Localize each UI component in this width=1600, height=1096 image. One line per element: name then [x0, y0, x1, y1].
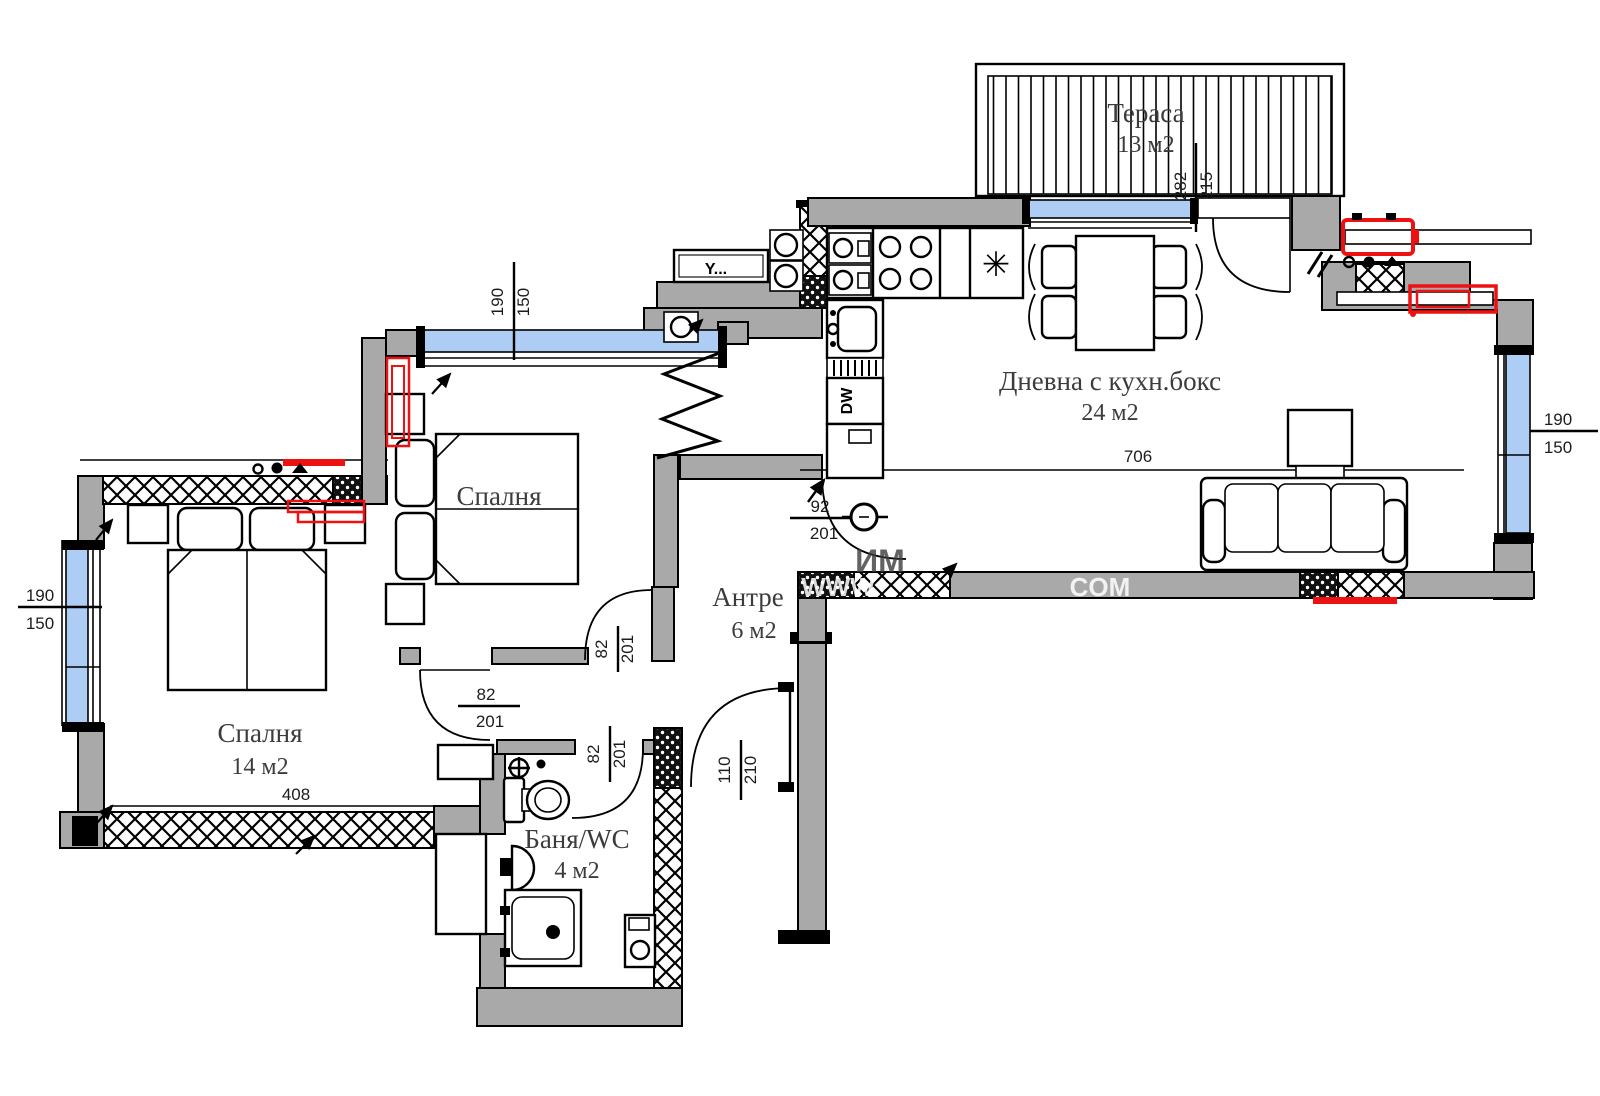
dim-terrace-w: 282 [1171, 172, 1190, 200]
room-label-bedroom1: Спалня [456, 481, 541, 511]
wall-insulated [104, 812, 434, 848]
wall [680, 455, 822, 479]
wall-corner [72, 816, 98, 846]
room-label-bath: Баня/WC [524, 824, 629, 854]
wall-shaft [1300, 572, 1338, 598]
nightstand [386, 584, 424, 624]
watermark-fragment: WWW [801, 572, 875, 602]
wall [497, 740, 575, 754]
chair [1152, 296, 1186, 338]
dim-bedroom2-width: 408 [282, 785, 310, 804]
sofa-seat [1331, 484, 1384, 552]
dim-window-w: 190 [26, 586, 54, 605]
room-label-living: Дневна с кухн.бокс [999, 366, 1221, 396]
window-cap [1022, 198, 1030, 224]
chair-back [1196, 244, 1202, 290]
break-line [657, 352, 722, 458]
nightstand [325, 505, 365, 543]
faucet-dot [830, 341, 836, 347]
dim-door-w: 82 [584, 745, 603, 764]
wall [1292, 196, 1340, 250]
fridge-icon: ✳ [982, 246, 1011, 284]
dim-door-h: 201 [610, 740, 629, 768]
chair [1042, 246, 1076, 288]
dim-window-h: 150 [26, 614, 54, 633]
wall-shaft [654, 728, 682, 788]
sofa-seat [1278, 484, 1331, 552]
toilet-bowl-inner [535, 788, 561, 812]
pillow [396, 440, 434, 506]
dim-window-h: 150 [1544, 438, 1572, 457]
room-area-living: 24 м2 [1081, 400, 1138, 426]
dim-door-h: 201 [618, 635, 637, 663]
faucet-dot [830, 310, 836, 316]
sofa-seat [1225, 484, 1278, 552]
wall [492, 648, 588, 664]
wall [798, 642, 826, 932]
wall-insulated [1338, 572, 1404, 598]
dim-entry-door-h: 201 [810, 524, 838, 543]
mark-dot [1364, 257, 1375, 268]
dim-window-h: 150 [514, 288, 533, 316]
balcony-door-frame [1198, 198, 1290, 218]
wall [480, 934, 505, 992]
ac-pipe [1411, 230, 1419, 243]
washbasin-tap [500, 858, 512, 876]
floor-plan-drawing: Тераса 13 м2 282 215 [0, 0, 1600, 1096]
chair-back [1196, 294, 1202, 340]
closet [436, 834, 486, 934]
window [66, 548, 88, 724]
sofa-armrest [1203, 500, 1225, 562]
toilet-tank [504, 778, 524, 822]
control [858, 241, 869, 256]
sofa-armrest [1383, 500, 1405, 562]
wall-face [1345, 230, 1531, 244]
room-area-hall: 6 м2 [731, 618, 776, 644]
wall-cap [778, 930, 830, 944]
door-hinge [778, 782, 794, 792]
window-cap [1494, 345, 1534, 355]
watermark-fragment: COM [1070, 572, 1131, 602]
mark-tick [1308, 252, 1322, 274]
electric-panel-label: Y... [705, 261, 727, 278]
control [849, 430, 871, 443]
door-arc-balcony [1213, 218, 1290, 292]
room-label-bedroom2: Спалня [217, 718, 302, 748]
shower-tray [512, 897, 574, 959]
shower-valve [500, 948, 510, 957]
window-cap [416, 326, 425, 368]
dim-door-h: 201 [476, 712, 504, 731]
dim-door-w: 82 [592, 640, 611, 659]
boiler-panel [629, 918, 649, 930]
wall [362, 338, 386, 504]
wall [808, 198, 1030, 226]
dish-rack-slats [834, 360, 876, 376]
shower-valve [500, 906, 510, 915]
dining-table [1076, 236, 1154, 350]
room-area-terrace: 13 м2 [1117, 132, 1174, 158]
radiator-mark [283, 459, 345, 466]
wall-insulated [654, 788, 682, 990]
floor-plan-page: Тераса 13 м2 282 215 [0, 0, 1600, 1096]
dim-living-width: 706 [1124, 447, 1152, 466]
dim-terrace-h: 215 [1197, 172, 1216, 200]
wall [78, 724, 104, 816]
dim-door-w: 82 [477, 685, 496, 704]
room-label-terrace: Тераса [1107, 98, 1184, 128]
window-cap [718, 326, 727, 368]
wall [78, 476, 104, 548]
wall-shaft [800, 276, 828, 308]
pillow [250, 508, 314, 550]
dim-wide-door-h: 210 [741, 756, 760, 784]
pillow [396, 513, 434, 579]
chair [1152, 246, 1186, 288]
wardrobe [438, 745, 493, 779]
window-cap [62, 722, 104, 732]
wall [1404, 572, 1534, 598]
door-arc-bath [572, 748, 643, 818]
chair-back [1029, 244, 1035, 290]
wall [798, 598, 826, 642]
nightstand [128, 505, 168, 543]
dim-window-w: 190 [1544, 410, 1572, 429]
sink-basin [838, 307, 876, 351]
dim-wide-door-w: 110 [715, 756, 734, 783]
room-area-bedroom2: 14 м2 [231, 754, 288, 780]
door-leaf-bedroom1 [652, 587, 674, 661]
window-cap [1494, 533, 1534, 543]
window-cap [62, 540, 104, 550]
side-table [1288, 410, 1352, 466]
radiator-mark [1313, 597, 1397, 604]
pillow [178, 508, 242, 550]
room-area-bath: 4 м2 [554, 858, 599, 884]
room-label-hall: Антре [712, 582, 784, 612]
wall [654, 455, 678, 587]
wall [477, 988, 682, 1026]
wall [400, 648, 420, 664]
dim-entry-door-w: 92 [811, 497, 830, 516]
chair-back [1029, 294, 1035, 340]
mark-circle [254, 465, 263, 474]
ac-bracket [1386, 213, 1396, 220]
dishwasher-label: DW [839, 387, 856, 415]
faucet-dot [537, 760, 546, 769]
wall [386, 330, 420, 356]
shower-drain [546, 925, 560, 939]
dim-window-w: 190 [488, 288, 507, 316]
window [1028, 200, 1192, 218]
control [858, 273, 869, 288]
mark-dot [272, 463, 283, 474]
mark-arrow [432, 374, 450, 394]
window [1506, 353, 1530, 533]
chair [1042, 296, 1076, 338]
ac-bracket [1352, 213, 1362, 220]
door-hinge [778, 682, 794, 692]
window-cap [1190, 198, 1198, 224]
ac-dot [1410, 311, 1416, 317]
